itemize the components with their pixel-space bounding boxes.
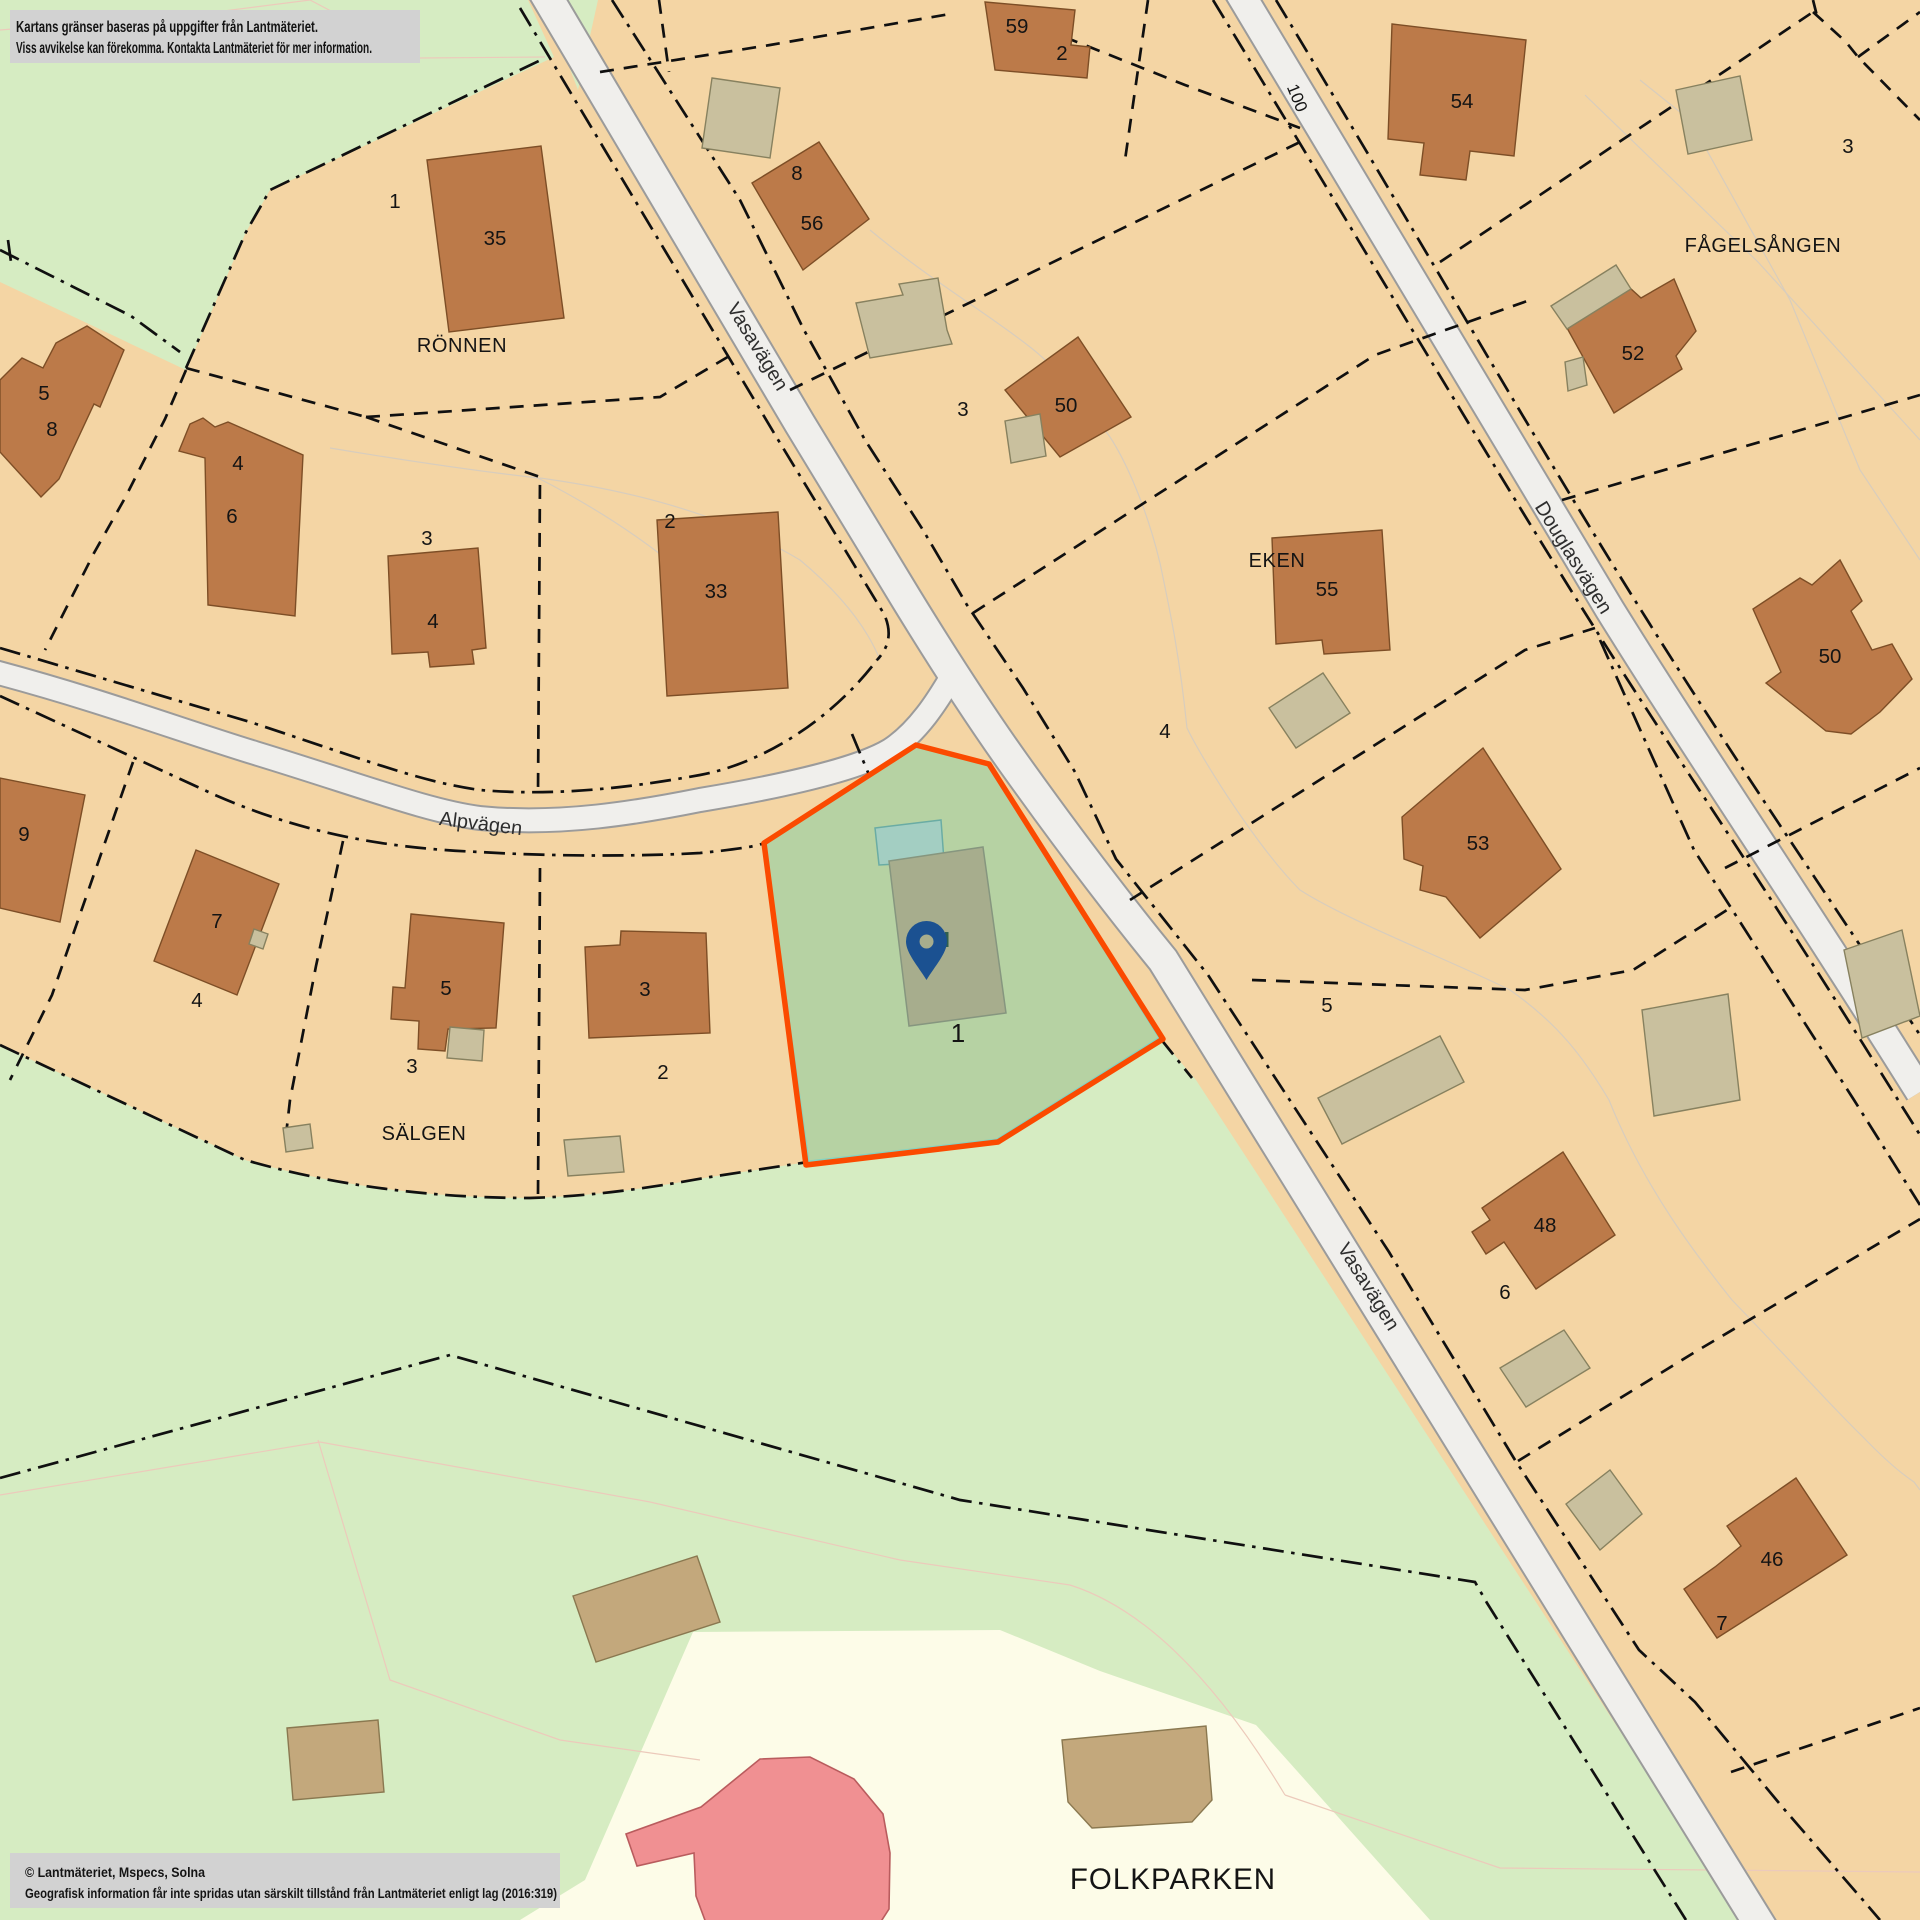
- svg-text:7: 7: [1716, 1612, 1727, 1635]
- svg-text:56: 56: [801, 212, 824, 235]
- svg-text:RÖNNEN: RÖNNEN: [417, 335, 507, 357]
- svg-text:Kartans gränser baseras på upp: Kartans gränser baseras på uppgifter frå…: [16, 19, 318, 36]
- svg-text:Viss avvikelse kan förekomma.: Viss avvikelse kan förekomma. Kontakta L…: [16, 40, 372, 57]
- svg-text:© Lantmäteriet, Mspecs, Solna: © Lantmäteriet, Mspecs, Solna: [25, 1864, 205, 1880]
- svg-text:3: 3: [957, 398, 968, 421]
- svg-text:5: 5: [440, 977, 451, 1000]
- svg-text:Geografisk information får int: Geografisk information får inte spridas …: [25, 1885, 557, 1901]
- svg-text:4: 4: [427, 610, 438, 633]
- svg-text:46: 46: [1761, 1548, 1784, 1571]
- svg-text:50: 50: [1055, 394, 1078, 417]
- svg-text:3: 3: [1842, 135, 1853, 158]
- svg-text:SÄLGEN: SÄLGEN: [382, 1123, 467, 1145]
- svg-text:8: 8: [46, 418, 57, 441]
- svg-text:2: 2: [664, 510, 675, 533]
- svg-text:5: 5: [38, 382, 49, 405]
- svg-text:FOLKPARKEN: FOLKPARKEN: [1070, 1863, 1276, 1896]
- svg-text:59: 59: [1006, 15, 1029, 38]
- svg-text:6: 6: [1499, 1281, 1510, 1304]
- svg-text:55: 55: [1316, 578, 1339, 601]
- svg-text:7: 7: [211, 910, 222, 933]
- svg-text:1: 1: [389, 190, 400, 213]
- svg-text:52: 52: [1622, 342, 1645, 365]
- svg-text:EKEN: EKEN: [1249, 550, 1306, 572]
- svg-text:4: 4: [232, 452, 243, 475]
- svg-text:9: 9: [18, 823, 29, 846]
- svg-text:33: 33: [705, 580, 728, 603]
- svg-text:5: 5: [1321, 994, 1332, 1017]
- svg-text:2: 2: [657, 1061, 668, 1084]
- svg-text:1: 1: [951, 1018, 965, 1048]
- svg-text:48: 48: [1534, 1214, 1557, 1237]
- svg-text:3: 3: [639, 978, 650, 1001]
- svg-text:3: 3: [406, 1055, 417, 1078]
- svg-text:50: 50: [1819, 645, 1842, 668]
- svg-text:53: 53: [1467, 832, 1490, 855]
- svg-text:6: 6: [226, 505, 237, 528]
- svg-text:FÅGELSÅNGEN: FÅGELSÅNGEN: [1685, 234, 1842, 257]
- svg-text:4: 4: [1159, 720, 1170, 743]
- svg-text:54: 54: [1451, 90, 1474, 113]
- svg-text:35: 35: [484, 227, 507, 250]
- svg-text:4: 4: [191, 989, 202, 1012]
- svg-text:2: 2: [1056, 42, 1067, 65]
- svg-text:3: 3: [421, 527, 432, 550]
- svg-text:8: 8: [791, 162, 802, 185]
